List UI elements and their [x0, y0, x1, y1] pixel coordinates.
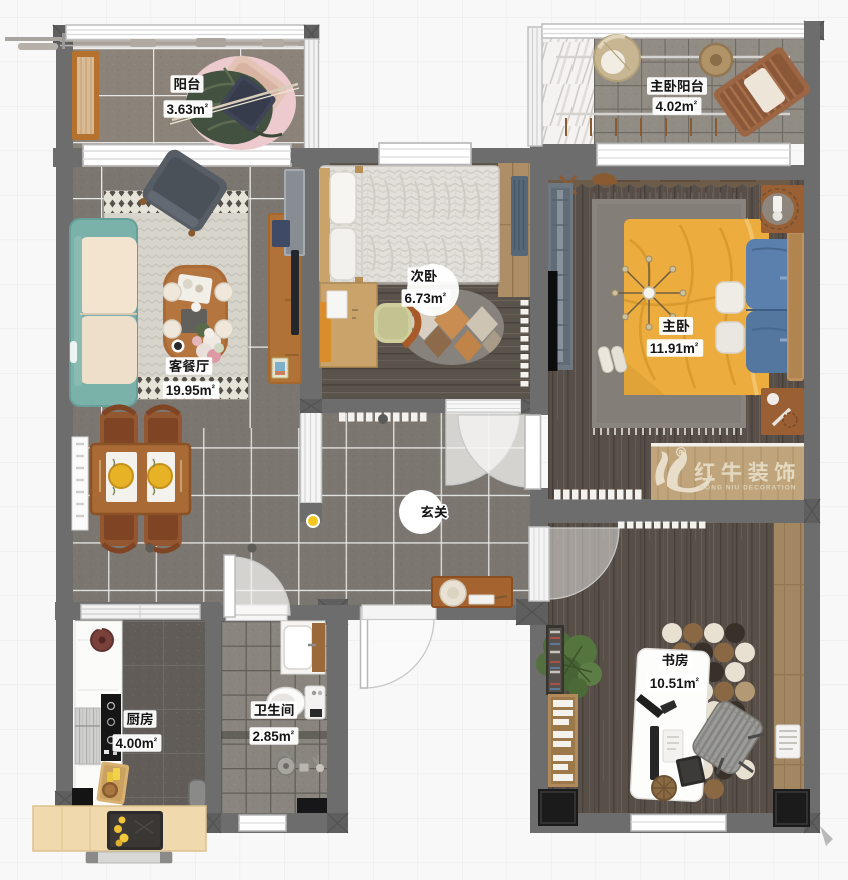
svg-text:4.00m²: 4.00m² — [116, 736, 158, 751]
svg-text:3.63m²: 3.63m² — [167, 102, 209, 117]
svg-text:6.73m²: 6.73m² — [405, 291, 447, 306]
svg-text:11.91m²: 11.91m² — [650, 341, 699, 356]
svg-text:4.02m²: 4.02m² — [656, 99, 698, 114]
svg-text:10.51m²: 10.51m² — [650, 676, 700, 691]
svg-text:R: R — [679, 450, 684, 457]
svg-text:HONG NIU DECORATION: HONG NIU DECORATION — [699, 485, 796, 492]
svg-text:19.95m²: 19.95m² — [166, 383, 216, 398]
svg-text:2.85m²: 2.85m² — [253, 729, 295, 744]
